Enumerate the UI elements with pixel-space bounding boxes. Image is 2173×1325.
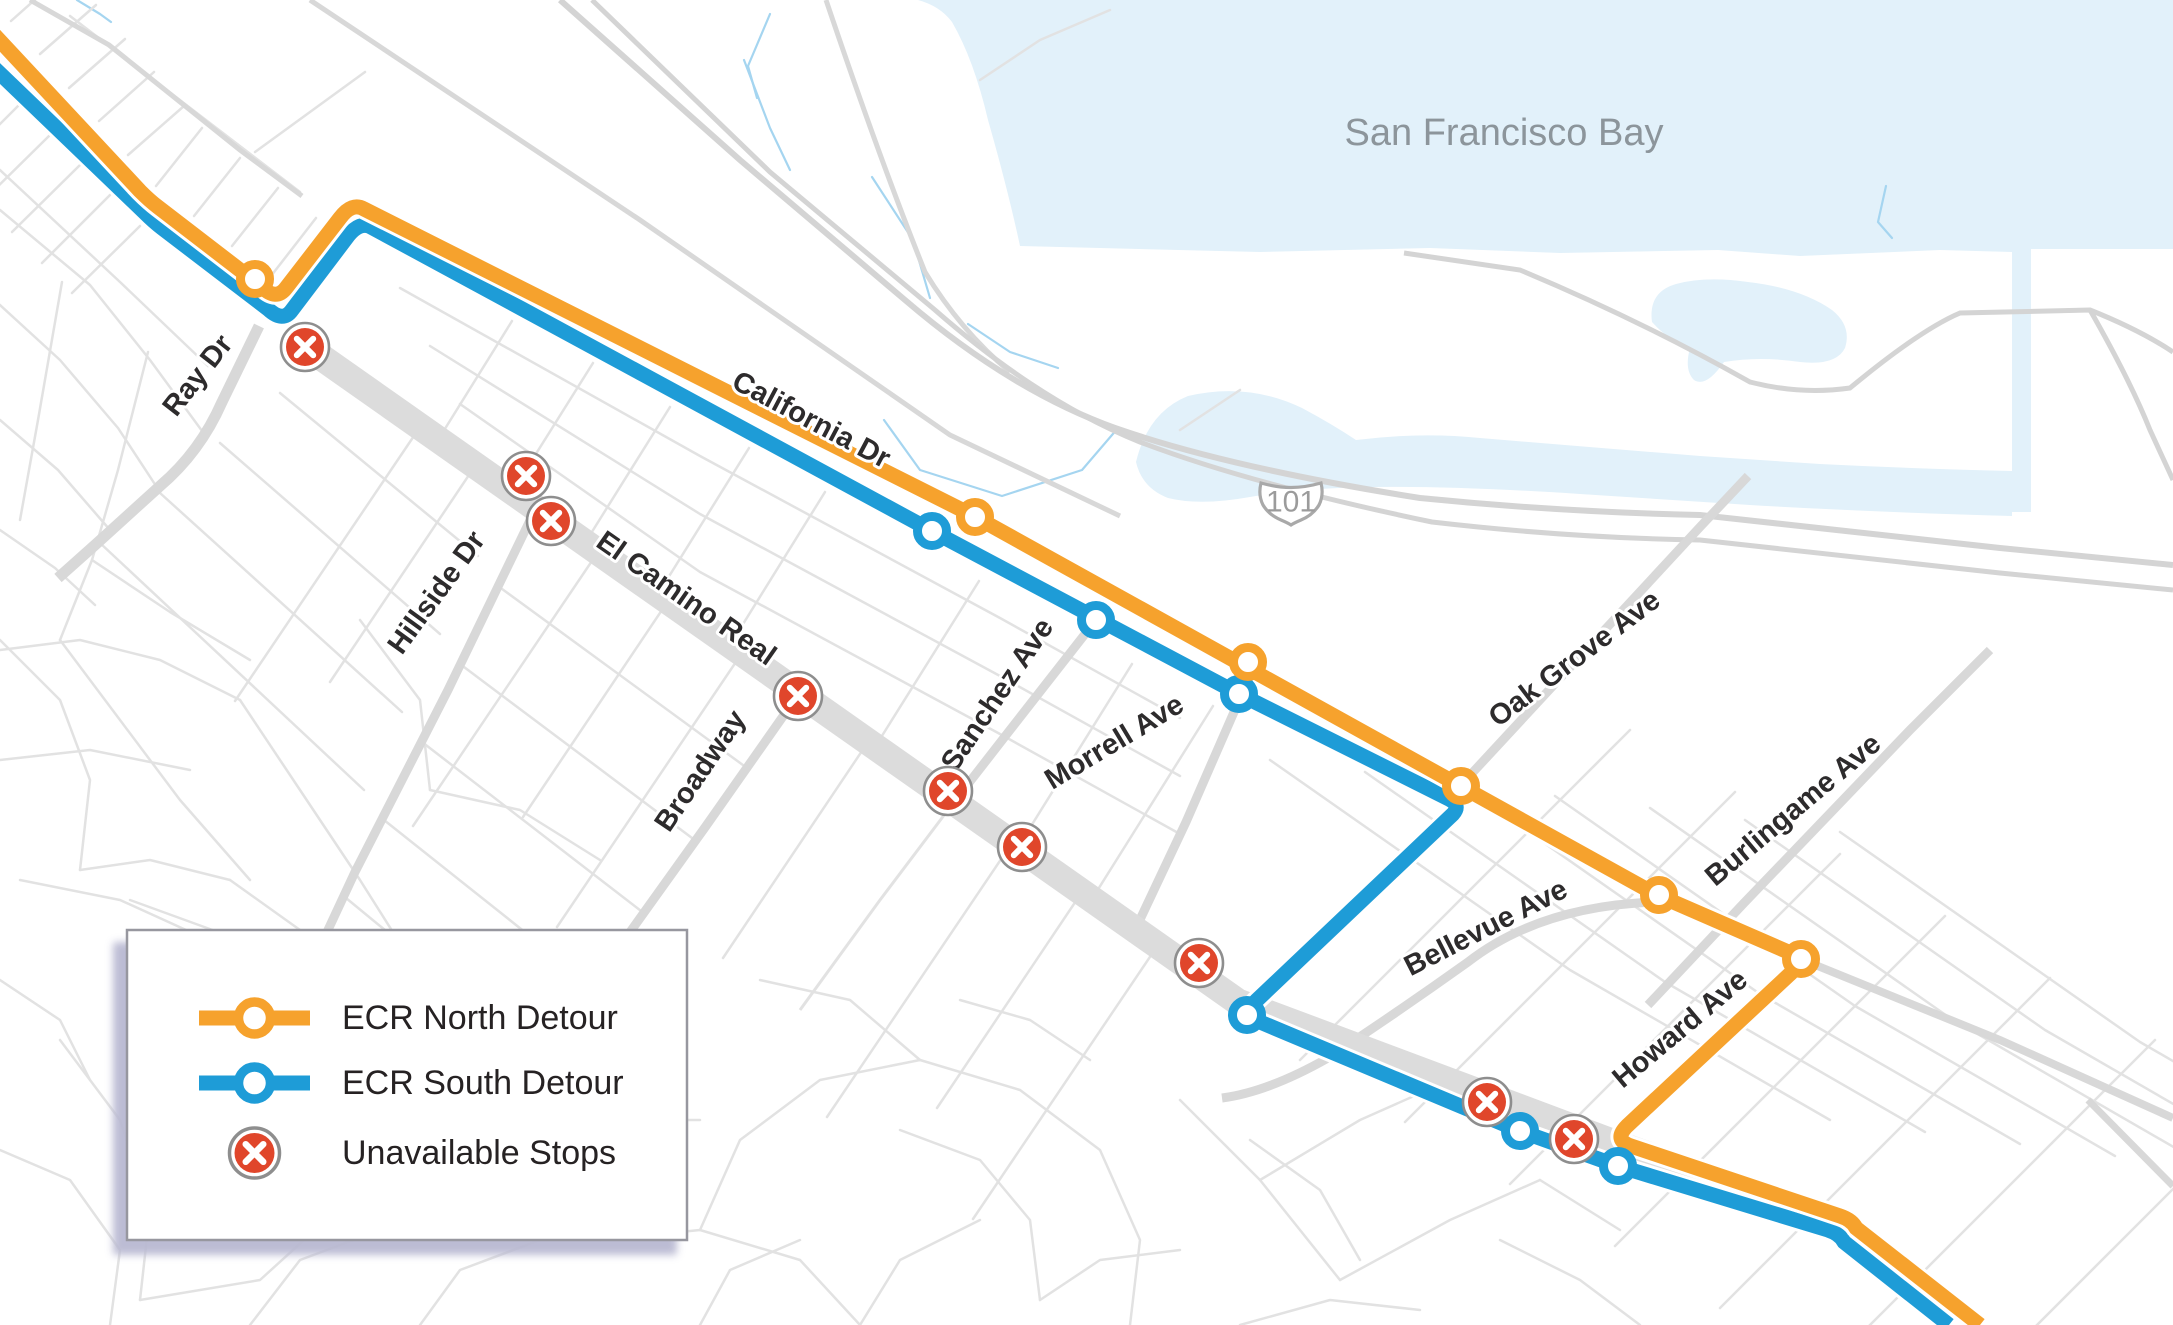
svg-text:Unavailable Stops: Unavailable Stops xyxy=(342,1134,616,1172)
svg-text:San Francisco Bay: San Francisco Bay xyxy=(1345,112,1664,154)
svg-text:ECR South Detour: ECR South Detour xyxy=(342,1064,624,1102)
svg-text:ECR North Detour: ECR North Detour xyxy=(342,999,618,1037)
svg-text:101: 101 xyxy=(1266,486,1316,519)
